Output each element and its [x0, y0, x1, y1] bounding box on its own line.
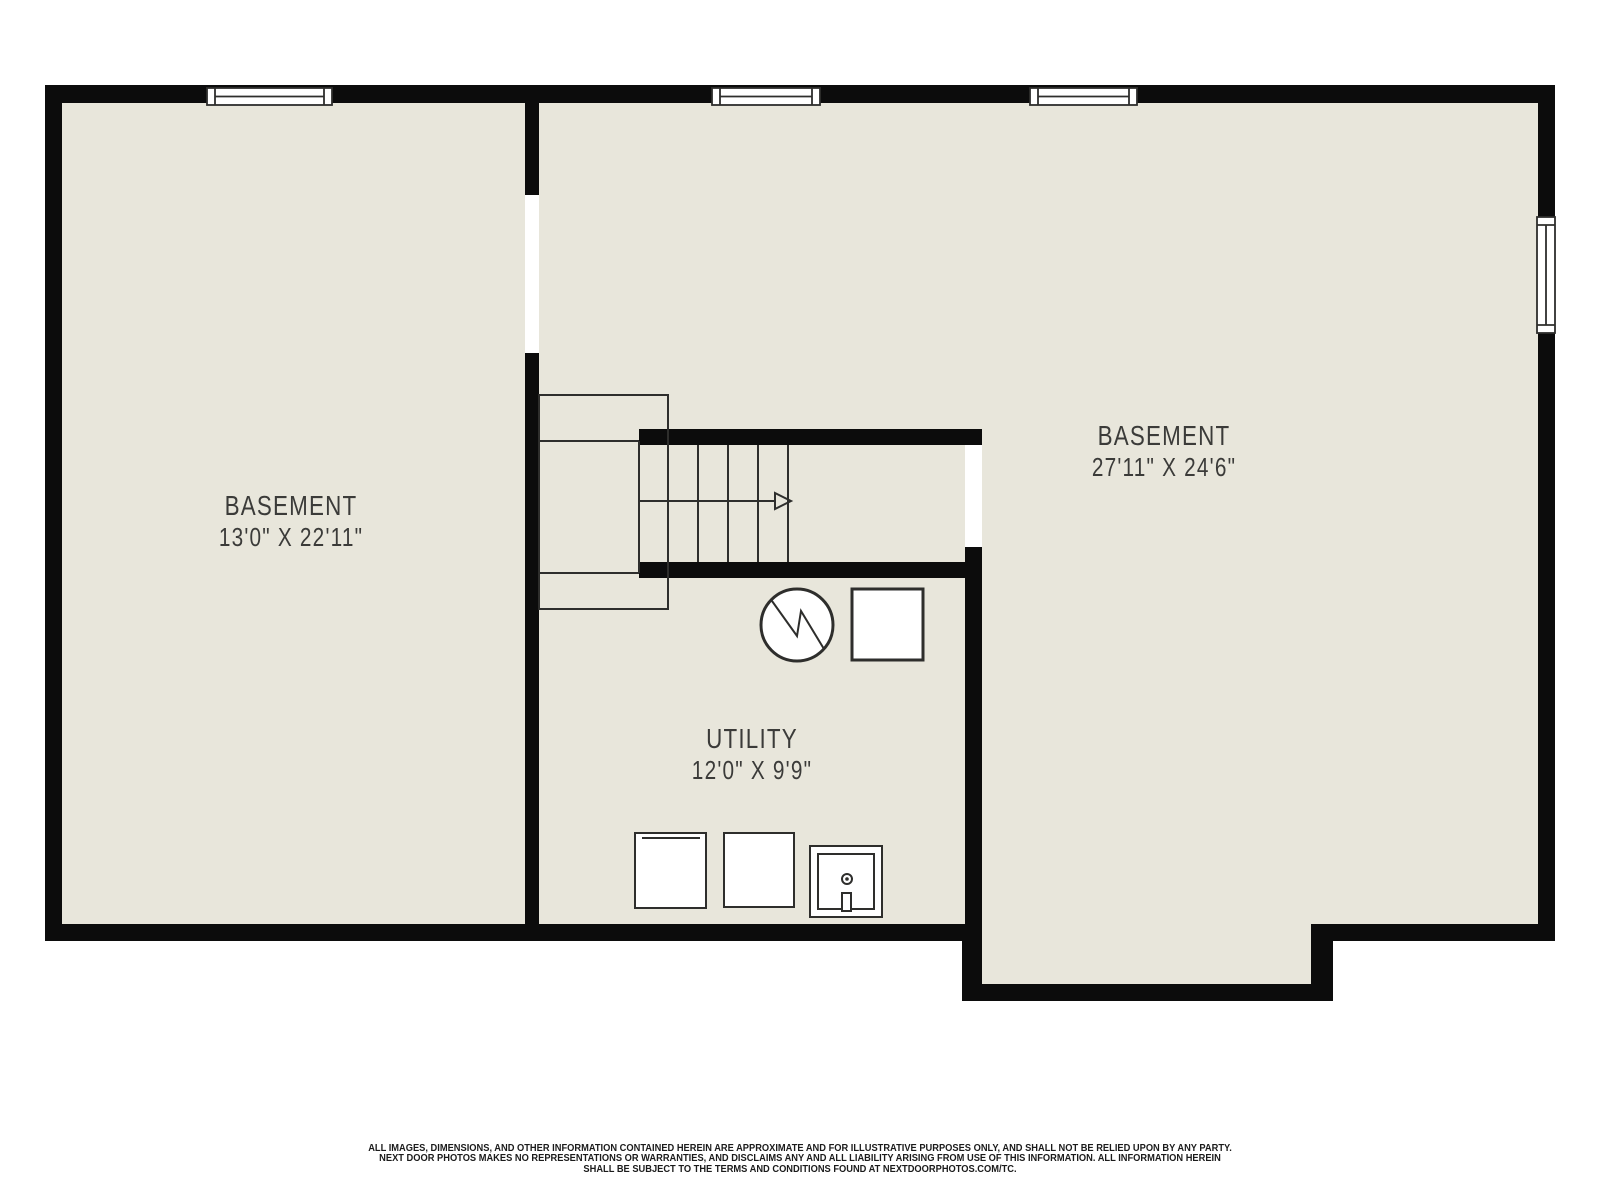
door-opening-stair-landing	[965, 445, 982, 547]
room-label-basement-left: BASEMENT 13'0" X 22'11"	[147, 489, 435, 552]
room-dimensions: 27'11" X 24'6"	[1020, 452, 1308, 482]
interior-wall-divider-lower	[525, 353, 539, 924]
room-dimensions: 13'0" X 22'11"	[147, 522, 435, 552]
dryer-icon	[724, 833, 794, 907]
sink-faucet	[842, 893, 851, 911]
room-label-basement-right: BASEMENT 27'11" X 24'6"	[1020, 419, 1308, 482]
door-opening-left-wall	[525, 195, 539, 353]
room-name: BASEMENT	[1020, 419, 1308, 452]
interior-wall-utility-right	[965, 547, 982, 1001]
floor-bumpout	[981, 924, 1311, 984]
floor-basement-right	[539, 103, 1538, 924]
room-label-utility: UTILITY 12'0" X 9'9"	[608, 722, 896, 785]
utility-sink-icon	[810, 846, 882, 917]
washer-body	[635, 833, 706, 908]
washer-icon	[635, 833, 706, 908]
disclaimer: ALL IMAGES, DIMENSIONS, AND OTHER INFORM…	[56, 1144, 1544, 1175]
window-icon-top-middle	[712, 88, 820, 105]
interior-wall-divider-upper	[525, 103, 539, 195]
floorplan-canvas: BASEMENT 13'0" X 22'11" BASEMENT 27'11" …	[0, 0, 1600, 1200]
window-icon-right-wall	[1537, 217, 1555, 333]
window-icon-top-right	[1030, 88, 1137, 105]
disclaimer-line: SHALL BE SUBJECT TO THE TERMS AND CONDIT…	[56, 1165, 1544, 1175]
room-name: UTILITY	[608, 722, 896, 755]
room-name: BASEMENT	[147, 489, 435, 522]
water-heater-tank	[761, 589, 833, 661]
sink-drain-center	[845, 877, 849, 881]
stair-wall-top	[639, 429, 982, 445]
water-heater-icon	[761, 589, 833, 661]
stair-wall-bottom	[639, 562, 982, 578]
room-dimensions: 12'0" X 9'9"	[608, 755, 896, 785]
furnace-icon	[852, 589, 923, 660]
floorplan-drawing	[0, 0, 1600, 1200]
window-icon-top-left	[207, 88, 332, 105]
